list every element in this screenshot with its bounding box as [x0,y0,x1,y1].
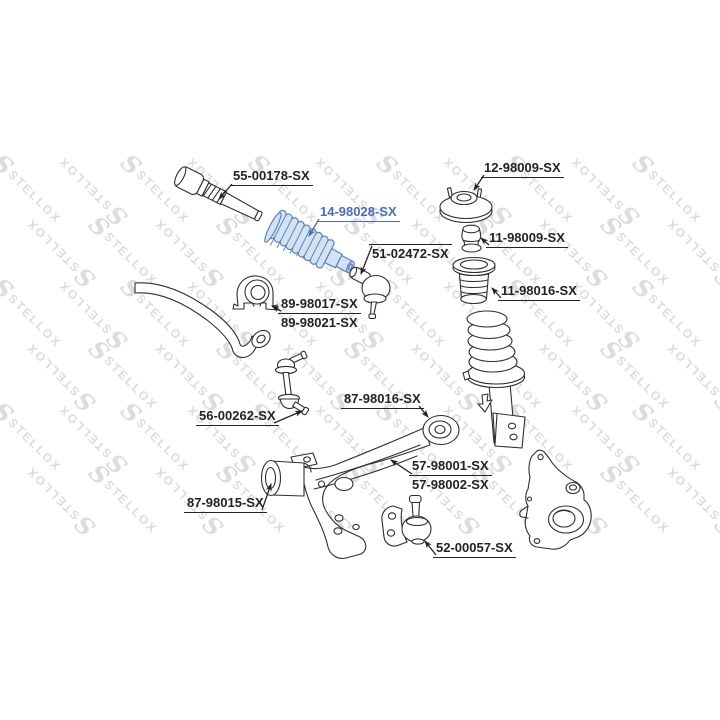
label-ball-joint: 52-00057-SX [433,540,516,558]
steering-knuckle-drawing [520,450,591,549]
label-strut-mount: 12-98009-SX [481,160,564,178]
stabilizer-link-drawing [276,351,310,416]
exploded-diagram [0,0,720,720]
label-bump-stop: 11-98009-SX [486,230,568,248]
label-steering-rack-boot: 14-98028-SX [317,204,400,222]
label-stabilizer-link: 56-00262-SX [196,408,279,426]
label-arm-rear-bushing: 87-98016-SX [341,391,424,409]
label-stabilizer-bushing-b: 89-98021-SX [278,315,361,332]
strut-assembly-drawing [463,311,525,448]
label-control-arm-a: 57-98001-SX [409,458,492,476]
stabilizer-bushing-drawing [233,276,278,310]
label-tie-rod: 55-00178-SX [230,168,313,186]
label-arm-front-bushing: 87-98015-SX [184,495,267,513]
strut-mount-drawing [440,188,492,223]
bump-stop-drawing [462,225,481,252]
parts-diagram-page: SSTELLOXSSTELLOXSSTELLOXSSTELLOXSSTELLOX… [0,0,720,720]
label-control-arm-b: 57-98002-SX [409,477,492,494]
strut-dust-boot-drawing [453,258,495,304]
label-strut-dust-boot: 11-98016-SX [498,283,580,301]
label-stabilizer-bushing-a: 89-98017-SX [278,296,361,314]
ball-joint-drawing [382,496,431,547]
label-tie-rod-end: 51-02472-SX [369,244,452,261]
